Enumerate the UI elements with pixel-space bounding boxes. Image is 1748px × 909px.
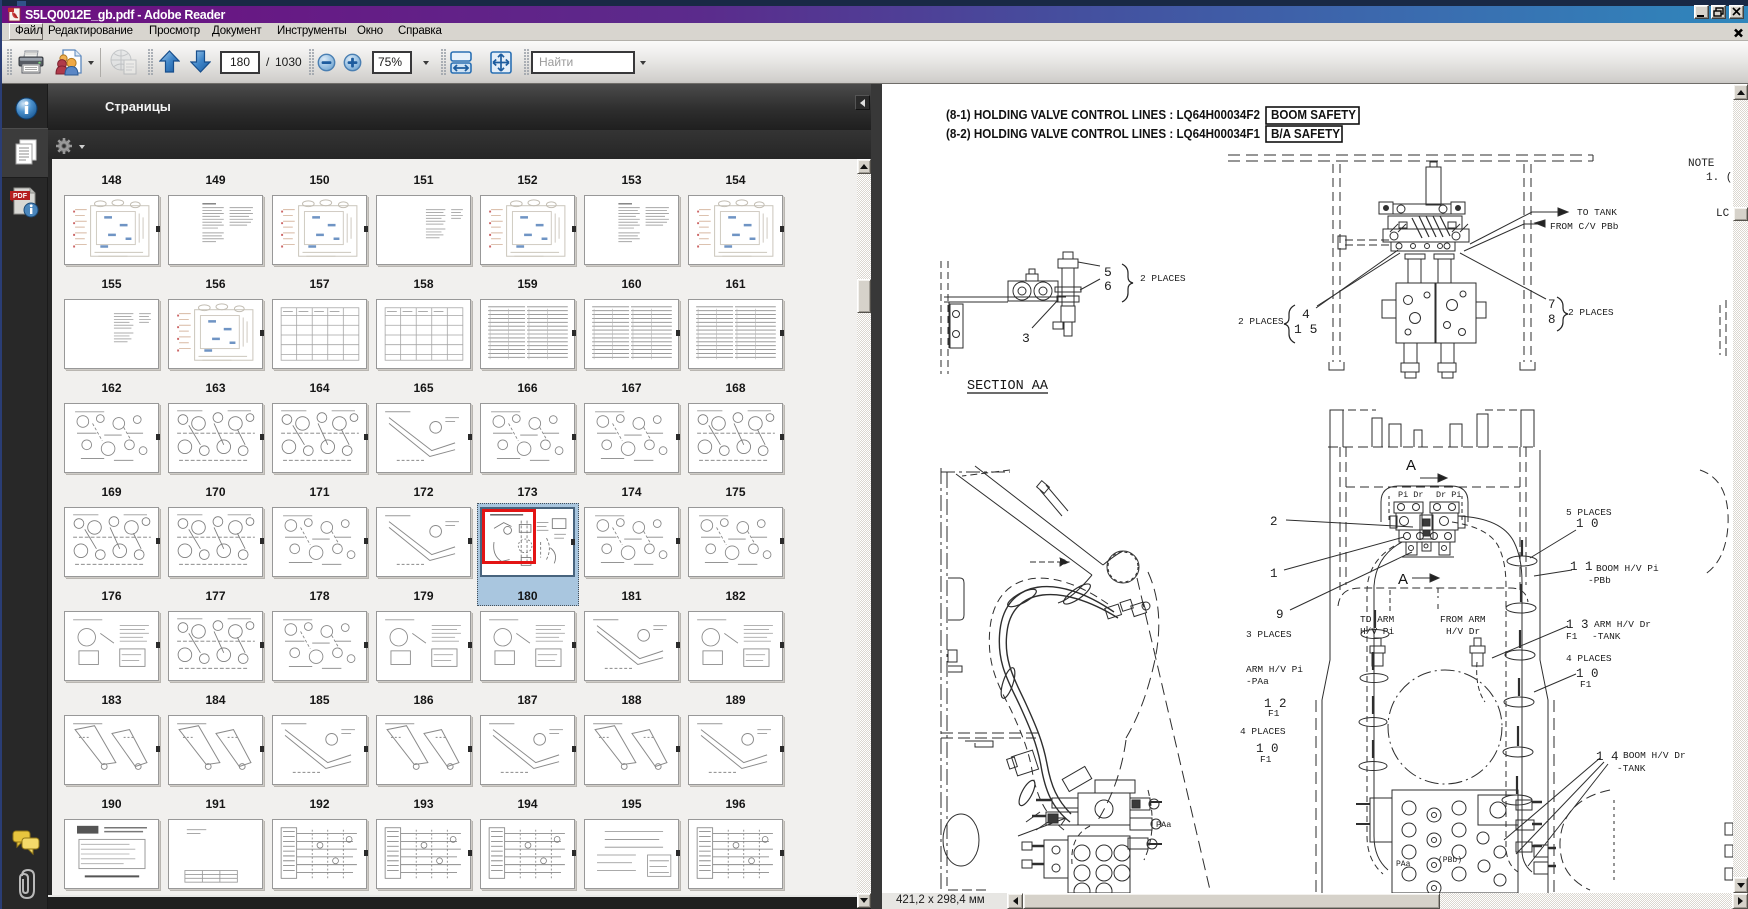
svg-text:-PBb: -PBb: [1588, 575, 1611, 586]
svg-text:PDF: PDF: [13, 193, 28, 200]
svg-text:2: 2: [1270, 515, 1278, 529]
svg-text:2 PLACES: 2 PLACES: [1238, 316, 1284, 327]
svg-text:LC: LC: [1716, 208, 1730, 220]
svg-text:H/V Pi: H/V Pi: [1360, 626, 1395, 637]
svg-text:-TANK: -TANK: [1592, 631, 1621, 642]
svg-text:A: A: [1398, 571, 1408, 588]
svg-text:-TANK: -TANK: [1617, 763, 1646, 774]
svg-text:ARM H/V Pi: ARM H/V Pi: [1246, 664, 1303, 675]
svg-text:1 1: 1 1: [1570, 560, 1593, 574]
svg-text:FROM ARM: FROM ARM: [1440, 614, 1486, 625]
svg-text:4 PLACES: 4 PLACES: [1566, 653, 1612, 664]
svg-text:H/V Dr: H/V Dr: [1446, 626, 1480, 637]
svg-text:TO ARM: TO ARM: [1360, 614, 1395, 625]
svg-text:3: 3: [1022, 331, 1030, 346]
svg-text:1 3: 1 3: [1566, 618, 1589, 632]
svg-text:B/A SAFETY: B/A SAFETY: [1271, 127, 1341, 141]
svg-text:2 PLACES: 2 PLACES: [1568, 307, 1614, 318]
svg-text:1 0: 1 0: [1256, 742, 1279, 756]
svg-text:1 5: 1 5: [1294, 322, 1317, 337]
svg-text:-PAa: -PAa: [1246, 676, 1269, 687]
svg-text:1 2: 1 2: [1264, 697, 1287, 711]
svg-text:(8-2) HOLDING VALVE CONTROL LI: (8-2) HOLDING VALVE CONTROL LINES : LQ64…: [946, 127, 1260, 141]
svg-text:SECTION AA: SECTION AA: [967, 379, 1049, 394]
svg-text:(8-1) HOLDING VALVE CONTROL LI: (8-1) HOLDING VALVE CONTROL LINES : LQ64…: [946, 108, 1260, 122]
svg-text:PAa: PAa: [1396, 860, 1411, 869]
svg-text:BOOM H/V Pi: BOOM H/V Pi: [1596, 563, 1659, 574]
svg-text:4 PLACES: 4 PLACES: [1240, 726, 1286, 737]
svg-text:ARM H/V Dr: ARM H/V Dr: [1594, 619, 1651, 630]
svg-text:3 PLACES: 3 PLACES: [1246, 629, 1292, 640]
svg-text:9: 9: [1276, 608, 1284, 622]
svg-text:FROM C/V PBb: FROM C/V PBb: [1550, 221, 1619, 232]
svg-text:7: 7: [1548, 298, 1556, 312]
svg-text:1. (: 1. (: [1706, 172, 1732, 184]
svg-text:TO TANK: TO TANK: [1577, 207, 1617, 218]
svg-text:2 PLACES: 2 PLACES: [1140, 273, 1186, 284]
svg-text:1 0: 1 0: [1576, 517, 1599, 531]
svg-text:F1: F1: [1566, 631, 1578, 642]
svg-text:4: 4: [1302, 307, 1310, 322]
svg-text:BOOM SAFETY: BOOM SAFETY: [1271, 108, 1357, 122]
svg-text:1 0: 1 0: [1576, 667, 1599, 681]
svg-text:(PBb): (PBb): [1438, 856, 1462, 865]
svg-text:BOOM H/V Dr: BOOM H/V Dr: [1623, 750, 1686, 761]
svg-text:8: 8: [1548, 313, 1556, 327]
svg-text:1: 1: [1270, 567, 1278, 581]
svg-text:NOTE: NOTE: [1688, 158, 1715, 170]
svg-text:Dr Pi: Dr Pi: [1436, 490, 1462, 500]
svg-text:5: 5: [1104, 265, 1112, 280]
svg-text:PAa: PAa: [1156, 820, 1171, 830]
svg-text:A: A: [1406, 457, 1416, 474]
svg-text:Pi Dr: Pi Dr: [1398, 490, 1424, 500]
svg-text:6: 6: [1104, 279, 1112, 294]
svg-text:1 4: 1 4: [1596, 750, 1619, 764]
